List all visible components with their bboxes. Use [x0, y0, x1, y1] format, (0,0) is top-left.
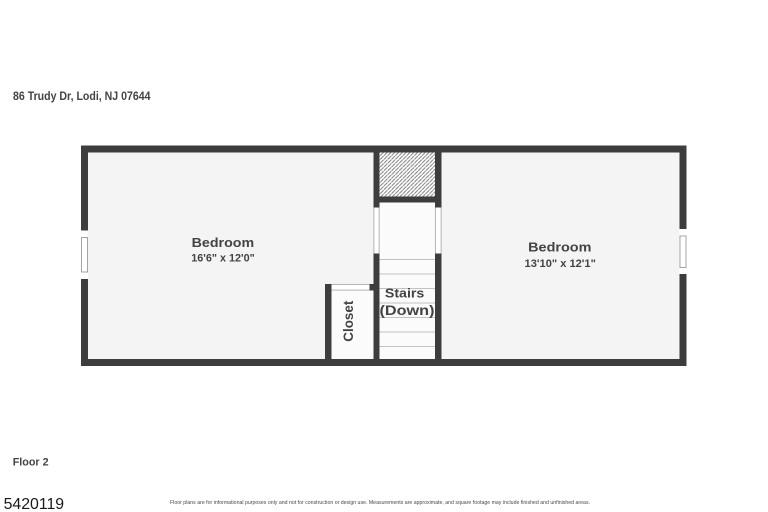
svg-text:Stairs: Stairs — [385, 286, 425, 301]
svg-text:Floor plans are for informatio: Floor plans are for informational purpos… — [170, 500, 590, 506]
svg-text:Bedroom: Bedroom — [528, 239, 591, 254]
svg-text:13'10" x 12'1": 13'10" x 12'1" — [525, 258, 596, 270]
svg-text:Closet: Closet — [341, 300, 356, 341]
svg-text:16'6" x 12'0": 16'6" x 12'0" — [191, 253, 255, 265]
svg-text:Bedroom: Bedroom — [192, 235, 255, 250]
svg-text:(Down): (Down) — [380, 303, 435, 318]
svg-text:86 Trudy Dr, Lodi, NJ 07644: 86 Trudy Dr, Lodi, NJ 07644 — [13, 89, 151, 103]
svg-text:Floor 2: Floor 2 — [13, 457, 49, 469]
svg-text:5420119: 5420119 — [4, 496, 65, 512]
